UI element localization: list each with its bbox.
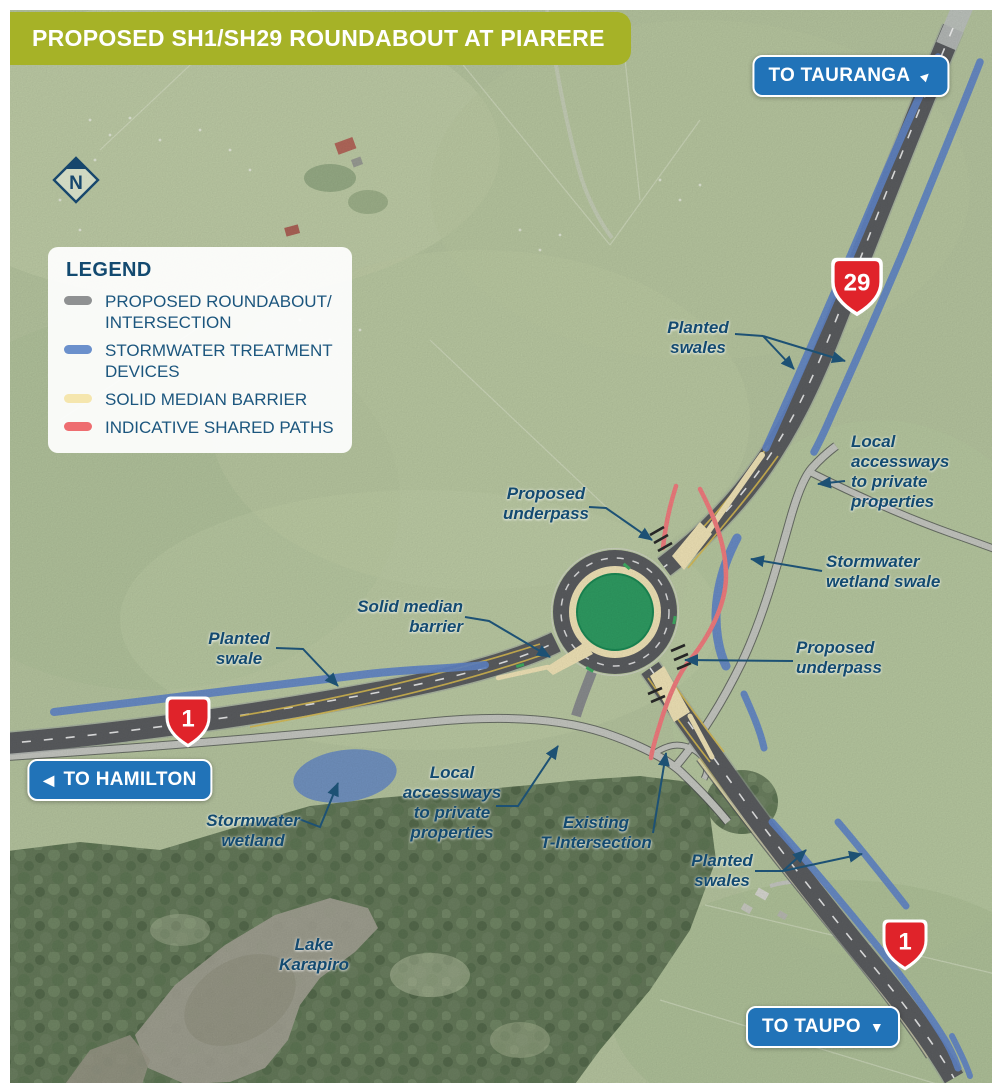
- northeast-arrow-icon: ▲: [917, 66, 937, 86]
- label-local-accessways-east: Local accessways to private properties: [851, 432, 949, 512]
- label-proposed-underpass-north: Proposed underpass: [503, 484, 589, 524]
- roundabout-swatch-icon: [64, 296, 92, 305]
- to-taupo-label: TO TAUPO: [762, 1016, 861, 1038]
- svg-text:N: N: [69, 173, 83, 194]
- to-tauranga-badge: TO TAURANGA ▲: [752, 55, 949, 97]
- west-arrow-icon: ◀: [43, 773, 54, 787]
- north-compass-icon: N: [50, 154, 102, 206]
- label-local-accessways-south: Local accessways to private properties: [403, 763, 501, 843]
- south-arrow-icon: ▼: [870, 1020, 884, 1034]
- legend-item: STORMWATER TREATMENT DEVICES: [64, 340, 336, 382]
- map-canvas: PROPOSED SH1/SH29 ROUNDABOUT AT PIARERE …: [0, 0, 1000, 1091]
- label-stormwater-wetland: Stormwater wetland: [206, 811, 300, 851]
- svg-text:29: 29: [844, 269, 871, 296]
- legend-item-label: STORMWATER TREATMENT DEVICES: [105, 340, 333, 382]
- sh29-shield: 29: [829, 256, 885, 318]
- median-barrier-swatch-icon: [64, 394, 92, 403]
- label-existing-t-intersection: Existing T-Intersection: [540, 813, 651, 853]
- legend-item: SOLID MEDIAN BARRIER: [64, 389, 336, 410]
- legend-item: PROPOSED ROUNDABOUT/ INTERSECTION: [64, 291, 336, 333]
- legend-item-label: PROPOSED ROUNDABOUT/ INTERSECTION: [105, 291, 332, 333]
- sh1-west-shield: 1: [164, 695, 212, 749]
- legend-item: INDICATIVE SHARED PATHS: [64, 417, 336, 438]
- to-hamilton-label: TO HAMILTON: [63, 769, 196, 791]
- sh1-south-shield: 1: [881, 918, 929, 972]
- legend-panel: LEGEND PROPOSED ROUNDABOUT/ INTERSECTION…: [48, 247, 352, 453]
- to-taupo-badge: TO TAUPO ▼: [746, 1006, 900, 1048]
- label-planted-swale-west: Planted swale: [208, 629, 269, 669]
- label-planted-swales-ne: Planted swales: [667, 318, 728, 358]
- stormwater-swatch-icon: [64, 345, 92, 354]
- aerial-map: [0, 0, 1000, 1091]
- legend-item-label: INDICATIVE SHARED PATHS: [105, 417, 334, 438]
- legend-title: LEGEND: [66, 259, 336, 282]
- label-planted-swales-south: Planted swales: [691, 851, 752, 891]
- grain-texture: [0, 0, 1000, 1091]
- to-tauranga-label: TO TAURANGA: [768, 65, 910, 87]
- to-hamilton-badge: ◀ TO HAMILTON: [27, 759, 212, 801]
- svg-text:1: 1: [181, 706, 194, 733]
- page-title: PROPOSED SH1/SH29 ROUNDABOUT AT PIARERE: [10, 12, 631, 65]
- svg-text:1: 1: [898, 929, 911, 956]
- label-lake-karapiro: Lake Karapiro: [279, 935, 349, 975]
- label-solid-median-barrier: Solid median barrier: [357, 597, 463, 637]
- label-proposed-underpass-east: Proposed underpass: [796, 638, 882, 678]
- shared-path-swatch-icon: [64, 422, 92, 431]
- legend-item-label: SOLID MEDIAN BARRIER: [105, 389, 307, 410]
- label-stormwater-wetland-swale: Stormwater wetland swale: [826, 552, 940, 592]
